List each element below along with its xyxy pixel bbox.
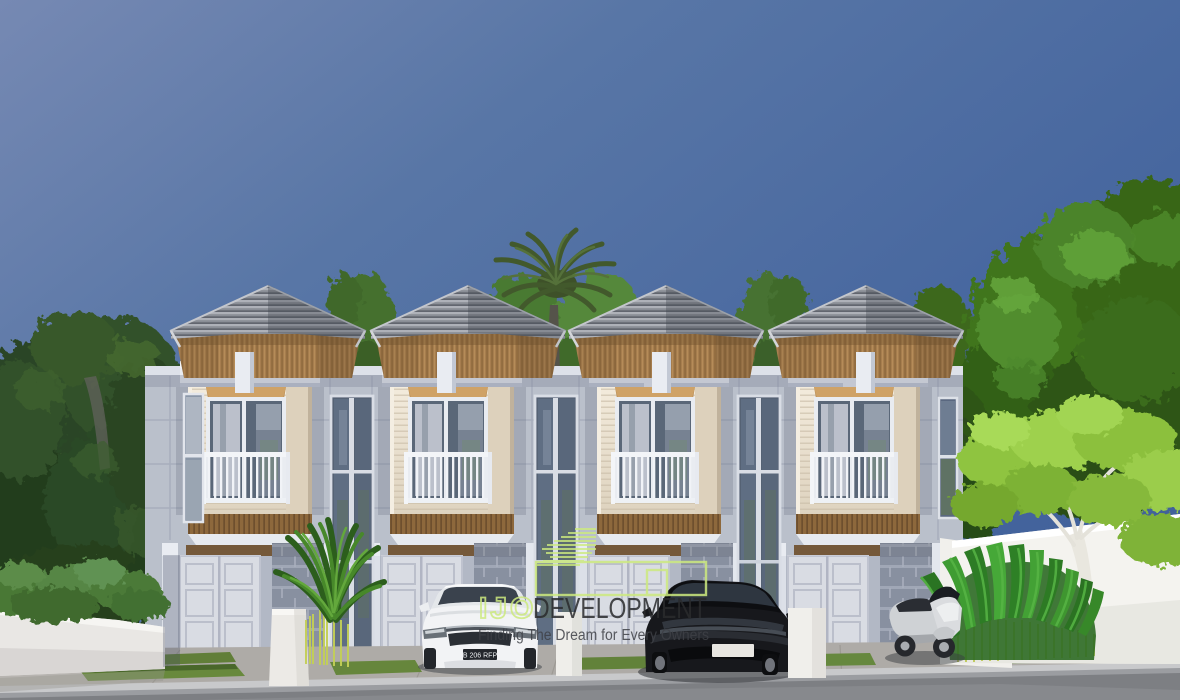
svg-text:B 206 RFP: B 206 RFP [463, 653, 498, 660]
svg-text:DEVELOPMENT: DEVELOPMENT [533, 593, 707, 625]
svg-text:Finding The Dream for Every Ow: Finding The Dream for Every Owners [478, 627, 709, 644]
svg-text:IJO: IJO [479, 592, 536, 625]
